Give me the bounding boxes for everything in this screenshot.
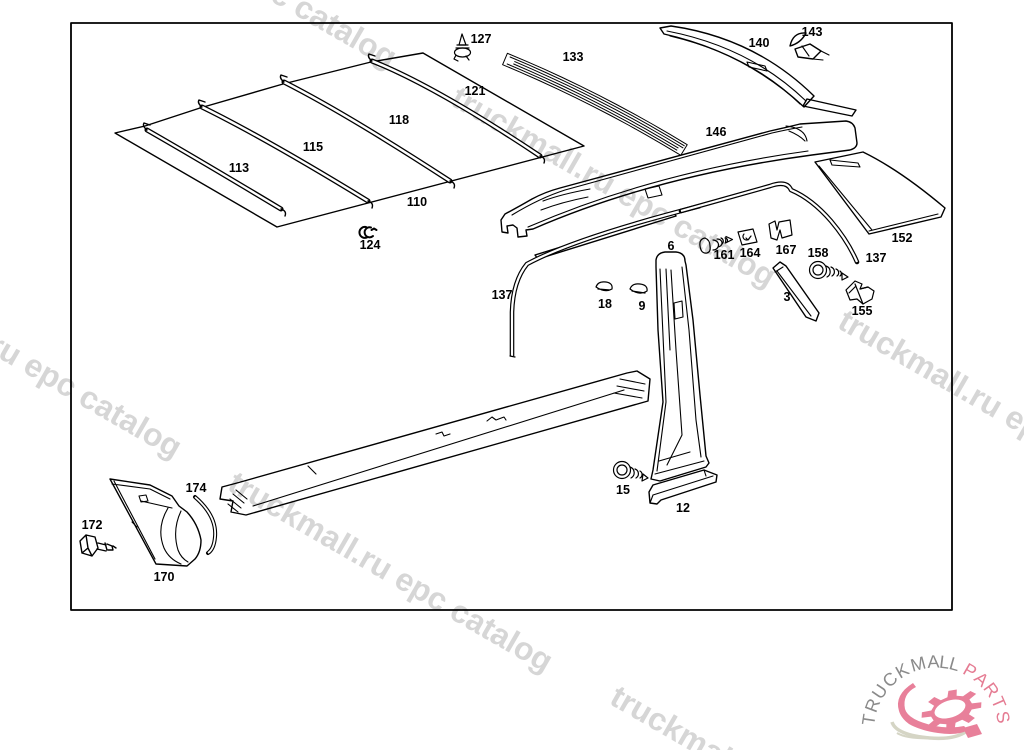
svg-text:15: 15 (616, 483, 630, 497)
svg-text:6: 6 (668, 239, 675, 253)
svg-text:143: 143 (802, 25, 823, 39)
svg-text:174: 174 (186, 481, 207, 495)
svg-text:truckmall.ru epc catalog: truckmall.ru epc catalog (223, 464, 560, 679)
svg-text:161: 161 (714, 248, 735, 262)
svg-text:12: 12 (676, 501, 690, 515)
svg-text:18: 18 (598, 297, 612, 311)
svg-text:164: 164 (740, 246, 761, 260)
svg-text:truckmall.ru epc catalog: truckmall.ru epc catalog (67, 0, 404, 75)
svg-text:3: 3 (784, 290, 791, 304)
svg-text:113: 113 (229, 161, 249, 175)
svg-text:118: 118 (389, 113, 409, 127)
svg-text:140: 140 (749, 36, 770, 50)
svg-text:158: 158 (808, 246, 829, 260)
svg-text:124: 124 (360, 238, 381, 252)
svg-text:152: 152 (892, 231, 913, 245)
svg-text:170: 170 (154, 570, 175, 584)
svg-text:167: 167 (776, 243, 797, 257)
svg-text:truckmall.ru epc catalog: truckmall.ru epc catalog (0, 250, 188, 465)
svg-text:155: 155 (852, 304, 873, 318)
svg-text:S: S (992, 709, 1014, 724)
svg-text:truckmall.ru epc catalog: truckmall.ru epc catalog (833, 302, 1024, 517)
svg-text:9: 9 (639, 299, 646, 313)
svg-text:121: 121 (465, 84, 486, 98)
svg-text:133: 133 (563, 50, 584, 64)
svg-text:137: 137 (866, 251, 887, 265)
svg-text:127: 127 (471, 32, 492, 46)
svg-text:137: 137 (492, 288, 513, 302)
svg-text:M: M (908, 652, 928, 675)
svg-text:172: 172 (82, 518, 103, 532)
svg-text:146: 146 (706, 125, 727, 139)
svg-text:110: 110 (407, 195, 427, 209)
svg-text:115: 115 (303, 140, 323, 154)
